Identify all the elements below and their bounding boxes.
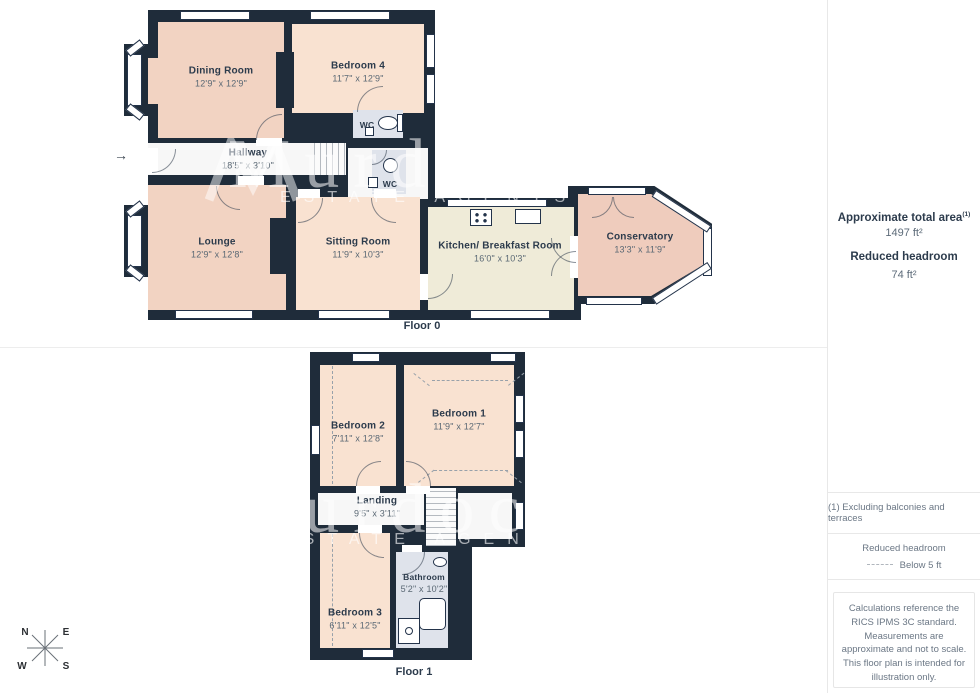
hob-icon [470,209,492,226]
room-name: Bedroom 3 [328,608,382,619]
total-area-superscript: (1) [962,211,970,218]
room-name: Bathroom [403,572,445,582]
room-label-kitchen: Kitchen/ Breakfast Room 16'0" x 10'3" [438,241,562,264]
room-label-wc1: WC [360,120,375,130]
room-label-sitting: Sitting Room 11'9" x 10'3" [326,237,391,260]
chimney-breast [276,52,294,108]
legend-section: Reduced headroom Below 5 ft [828,533,980,580]
reduced-headroom-label: Reduced headroom [828,251,980,263]
room-name: Bedroom 4 [331,61,385,72]
window [127,54,142,106]
window [362,649,394,658]
room-label-conservatory: Conservatory 13'3" x 11'9" [607,232,674,255]
footnote-text: (1) Excluding balconies and terraces [828,502,980,524]
floorplan-page: Dining Room 12'9" x 12'9" Bedroom 4 11'7… [0,0,980,693]
room-name: Lounge [198,237,235,248]
entrance-arrow-icon: → [114,147,128,163]
headroom-dash [432,380,508,381]
window [515,430,524,458]
room-label-landing: Landing 9'5" x 3'11" [354,496,400,519]
window [447,199,547,207]
room-dims: 11'9" x 12'7" [433,422,484,432]
room-name: Dining Room [189,66,253,77]
window [490,353,516,362]
room-label-dining: Dining Room 12'9" x 12'9" [189,66,253,89]
info-sidebar: Approximate total area(1) 1497 ft² Reduc… [827,0,980,693]
total-area-label: Approximate total area(1) [828,208,980,226]
bay-opening [148,58,158,104]
sink-icon [368,177,378,188]
basin-icon [383,158,398,173]
window [310,11,390,20]
floor0-caption: Floor 0 [404,320,441,332]
headroom-dash [434,470,508,471]
window [470,310,550,319]
door-gap [356,486,380,494]
bath-icon [419,598,446,630]
room-label-bedroom2: Bedroom 2 7'11" x 12'8" [331,421,385,444]
door-gap [358,525,382,533]
kitchen-sink-icon [515,209,541,224]
room-dims: 12'9" x 12'9" [195,79,247,89]
room-dims: 11'7" x 12'9" [332,74,383,84]
total-area-value: 1497 ft² [828,227,980,239]
dashed-line-sample [867,564,893,565]
room-label-lounge: Lounge 12'9" x 12'8" [191,237,243,260]
room-label-hallway: Hallway 18'5" x 3'10" [222,148,274,171]
staircase-floor1 [426,488,456,546]
room-dims: 5'2" x 10'2" [401,584,448,594]
room-dims: 12'9" x 12'8" [191,250,243,260]
footnote-section: (1) Excluding balconies and terraces [828,492,980,533]
room-label-wc2: WC [383,179,398,189]
room-dims: 18'5" x 3'10" [222,161,274,171]
room-dims: 11'9" x 10'3" [332,250,383,260]
compass-e: E [63,627,70,638]
floor-divider [0,347,827,348]
room-name: Conservatory [607,232,674,243]
door-gap [298,189,320,198]
watermark-logo-icon [205,483,300,549]
room-dims: 16'0" x 10'3" [474,254,526,264]
legend-label: Reduced headroom [862,543,945,554]
door-gap [406,486,430,494]
disclaimer-card: Calculations reference the RICS IPMS 3C … [833,592,975,688]
room-name: Kitchen/ Breakfast Room [438,241,562,252]
bay-opening [148,219,158,265]
window [127,215,142,267]
room-name: Landing [357,496,397,507]
room-name: WC [360,120,375,130]
room-label-bedroom1: Bedroom 1 11'9" x 12'7" [432,409,486,432]
legend-value: Below 5 ft [900,560,942,571]
window [586,297,642,305]
compass-s: S [63,661,70,672]
door-gap [402,545,422,552]
shower-drain-icon [405,627,413,635]
window [318,310,390,319]
room-name: Bedroom 2 [331,421,385,432]
window [515,502,524,530]
floor1-caption: Floor 1 [396,666,433,678]
door-gap [374,189,396,198]
staircase-floor0 [314,143,346,175]
compass-w: W [17,661,27,672]
window [352,353,380,362]
room-name: Bedroom 1 [432,409,486,420]
window [311,425,320,455]
room-name: Hallway [229,148,268,159]
window [175,310,253,319]
room-label-bedroom3: Bedroom 3 6'11" x 12'5" [328,608,382,631]
window [426,34,435,68]
room-dims: 7'11" x 12'8" [332,434,383,444]
landing-extension [458,493,512,539]
door-gap [238,176,264,185]
room-name: WC [383,179,398,189]
room-dims: 9'5" x 3'11" [354,509,400,519]
window [180,11,250,20]
room-dims: 13'3" x 11'9" [614,245,665,255]
toilet-icon [433,557,447,567]
room-name: Sitting Room [326,237,391,248]
window [515,395,524,423]
compass-n: N [21,627,28,638]
reduced-headroom-value: 74 ft² [828,269,980,281]
room-label-bedroom4: Bedroom 4 11'7" x 12'9" [331,61,385,84]
floorplan-canvas: Dining Room 12'9" x 12'9" Bedroom 4 11'7… [0,0,827,693]
window [426,74,435,104]
cistern-icon [397,114,403,132]
room-label-bathroom: Bathroom 5'2" x 10'2" [401,572,448,594]
door-gap [420,274,428,300]
total-area-text: Approximate total area [838,212,963,224]
window [588,187,646,195]
compass-rose-icon: N E W S [8,614,84,682]
room-dims: 6'11" x 12'5" [329,621,380,631]
toilet-icon [378,116,398,130]
chimney-breast [270,218,290,274]
disclaimer-text: Calculations reference the RICS IPMS 3C … [841,602,967,685]
